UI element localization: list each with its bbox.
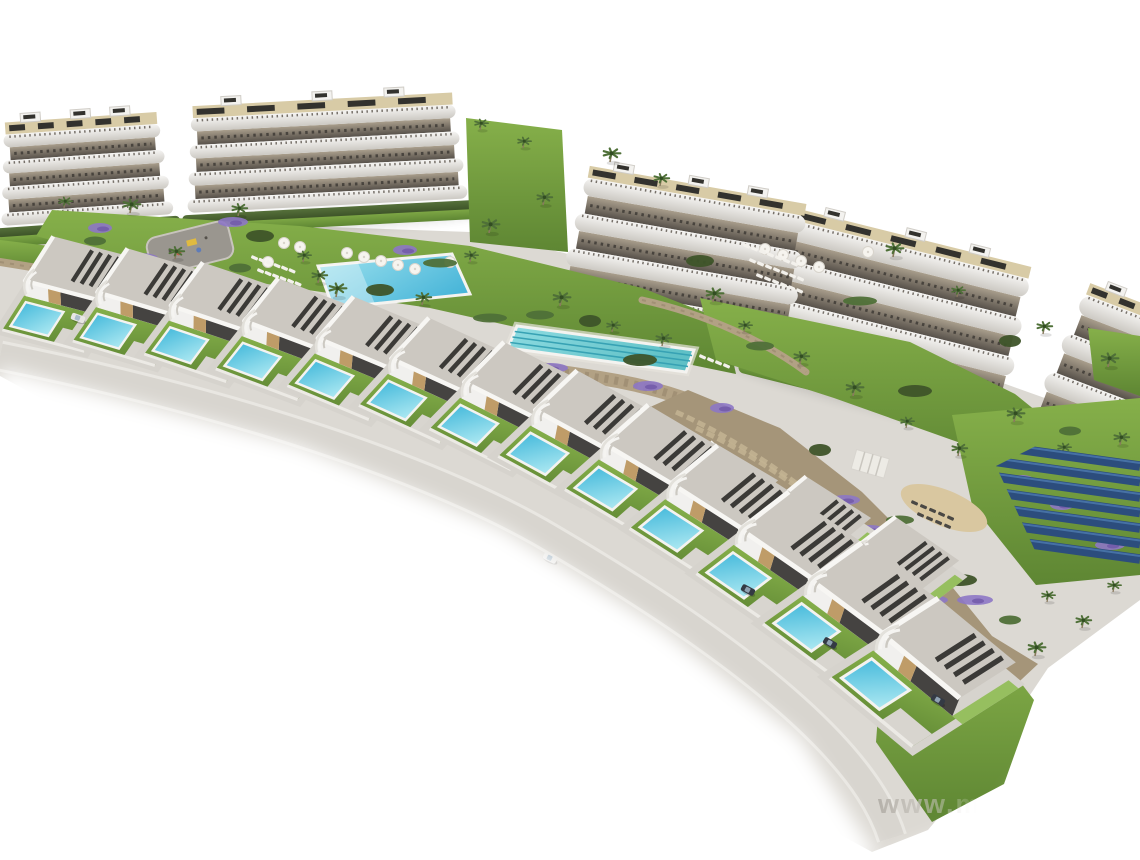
palm-shadow bbox=[1044, 601, 1054, 604]
purple-shrub-core bbox=[230, 221, 242, 226]
garden-bush bbox=[843, 297, 877, 306]
palm-crown bbox=[893, 246, 897, 250]
palm-shadow bbox=[520, 147, 530, 150]
palm-crown bbox=[853, 385, 857, 389]
palm-shadow bbox=[127, 212, 140, 216]
palm-crown bbox=[130, 202, 134, 206]
roof-solar-panel bbox=[9, 124, 25, 131]
garden-lawn bbox=[466, 118, 568, 252]
garden-bush bbox=[423, 259, 457, 268]
garden-bush bbox=[746, 342, 774, 351]
palm-shadow bbox=[607, 161, 620, 165]
palm-shadow bbox=[1040, 333, 1052, 337]
roof-box-panel bbox=[73, 111, 85, 116]
garden-bush bbox=[366, 284, 394, 296]
palm-shadow bbox=[657, 185, 669, 189]
palm-crown bbox=[660, 176, 663, 179]
garden-bush bbox=[999, 616, 1021, 625]
umbrella-pole bbox=[800, 260, 802, 262]
palm-shadow bbox=[486, 232, 499, 236]
palm-shadow bbox=[1011, 421, 1024, 425]
palm-shadow bbox=[710, 301, 723, 305]
palm-shadow bbox=[659, 345, 671, 349]
umbrella-pole bbox=[283, 242, 285, 244]
garden-bush bbox=[246, 230, 274, 242]
palm-shadow bbox=[419, 304, 431, 308]
palm-crown bbox=[238, 206, 241, 209]
palm-crown bbox=[489, 222, 493, 226]
palm-crown bbox=[470, 254, 473, 257]
umbrella-pole bbox=[299, 246, 301, 248]
palm-shadow bbox=[890, 256, 903, 260]
palm-shadow bbox=[954, 296, 964, 299]
garden-bush bbox=[473, 314, 507, 323]
palm-shadow bbox=[557, 305, 570, 309]
palm-shadow bbox=[955, 455, 967, 459]
scene-root bbox=[0, 83, 1140, 860]
palm-crown bbox=[1082, 618, 1085, 621]
palm-shadow bbox=[300, 261, 310, 264]
garden-bush bbox=[999, 335, 1021, 347]
palm-shadow bbox=[540, 204, 552, 208]
render-stage: www.m bbox=[0, 0, 1140, 860]
palm-shadow bbox=[850, 395, 863, 399]
palm-shadow bbox=[1105, 366, 1118, 370]
palm-crown bbox=[957, 289, 960, 292]
umbrella-pole bbox=[346, 252, 348, 254]
palm-crown bbox=[662, 336, 665, 339]
palm-crown bbox=[1043, 324, 1046, 327]
palm-crown bbox=[610, 151, 614, 155]
palm-crown bbox=[175, 249, 178, 252]
palm-crown bbox=[744, 324, 747, 327]
palm-crown bbox=[800, 354, 803, 357]
palm-crown bbox=[336, 286, 340, 290]
palm-crown bbox=[1063, 446, 1066, 449]
palm-shadow bbox=[1032, 655, 1045, 659]
garden-bush bbox=[526, 311, 554, 320]
garden-bush bbox=[898, 385, 932, 397]
palm-shadow bbox=[741, 331, 751, 334]
palm-shadow bbox=[797, 363, 809, 367]
roof-solar-panel bbox=[95, 118, 111, 125]
roof-solar-panel bbox=[38, 122, 54, 129]
palm-tree bbox=[604, 148, 621, 165]
watermark-text: www.m bbox=[877, 789, 982, 819]
roof-box-panel bbox=[224, 98, 236, 103]
garden-bush bbox=[1059, 427, 1081, 436]
purple-shrub-core bbox=[97, 227, 109, 232]
umbrella-pole bbox=[818, 266, 820, 268]
palm-crown bbox=[523, 140, 526, 143]
palm-crown bbox=[560, 295, 564, 299]
palm-crown bbox=[543, 195, 546, 198]
roof-solar-panel bbox=[66, 120, 82, 127]
roof-solar-panel bbox=[124, 116, 140, 123]
palm-crown bbox=[1120, 435, 1123, 438]
palm-crown bbox=[480, 122, 483, 125]
palm-crown bbox=[318, 273, 321, 276]
palm-shadow bbox=[903, 427, 913, 430]
palm-crown bbox=[1035, 645, 1039, 649]
umbrella-pole bbox=[397, 264, 399, 266]
umbrella-pole bbox=[414, 268, 416, 270]
palm-shadow bbox=[609, 331, 619, 334]
garden-bush bbox=[809, 444, 831, 456]
palm-shadow bbox=[1117, 444, 1129, 448]
palm-crown bbox=[958, 446, 961, 449]
purple-shrub-core bbox=[719, 407, 731, 412]
umbrella-pole bbox=[363, 256, 365, 258]
purple-shrub-core bbox=[402, 249, 414, 254]
palm-crown bbox=[1014, 411, 1018, 415]
roof-box-panel bbox=[387, 89, 399, 94]
palm-shadow bbox=[1110, 591, 1120, 594]
palm-shadow bbox=[61, 207, 71, 210]
purple-shrub-core bbox=[645, 385, 657, 390]
roof-box-panel bbox=[113, 108, 125, 113]
palm-crown bbox=[906, 420, 909, 423]
palm-crown bbox=[1047, 594, 1050, 597]
palm-crown bbox=[713, 291, 717, 295]
palm-shadow bbox=[172, 258, 184, 262]
palm-shadow bbox=[333, 296, 346, 300]
palm-crown bbox=[303, 254, 306, 257]
palm-crown bbox=[1108, 356, 1112, 360]
apartment-building bbox=[160, 83, 492, 239]
garden-bush bbox=[84, 237, 106, 246]
palm-shadow bbox=[315, 282, 327, 286]
palm-crown bbox=[64, 200, 67, 203]
palm-shadow bbox=[1079, 627, 1091, 631]
garden-bush bbox=[229, 264, 251, 273]
purple-shrub-core bbox=[972, 599, 984, 604]
palm-shadow bbox=[467, 261, 477, 264]
umbrella-pole bbox=[380, 260, 382, 262]
palm-shadow bbox=[477, 129, 487, 132]
garden-bush bbox=[579, 315, 601, 327]
garden-bush bbox=[623, 354, 657, 366]
render-canvas: www.m bbox=[0, 0, 1140, 860]
palm-crown bbox=[612, 324, 615, 327]
umbrella-pole bbox=[782, 254, 784, 256]
umbrella-pole bbox=[867, 251, 869, 253]
garden-bush bbox=[686, 255, 714, 267]
palm-crown bbox=[422, 295, 425, 298]
palm-tree bbox=[1037, 322, 1052, 337]
umbrella-pole bbox=[764, 248, 766, 250]
palm-crown bbox=[1113, 584, 1116, 587]
roof-box-panel bbox=[23, 114, 35, 119]
roof-box-panel bbox=[315, 93, 327, 98]
